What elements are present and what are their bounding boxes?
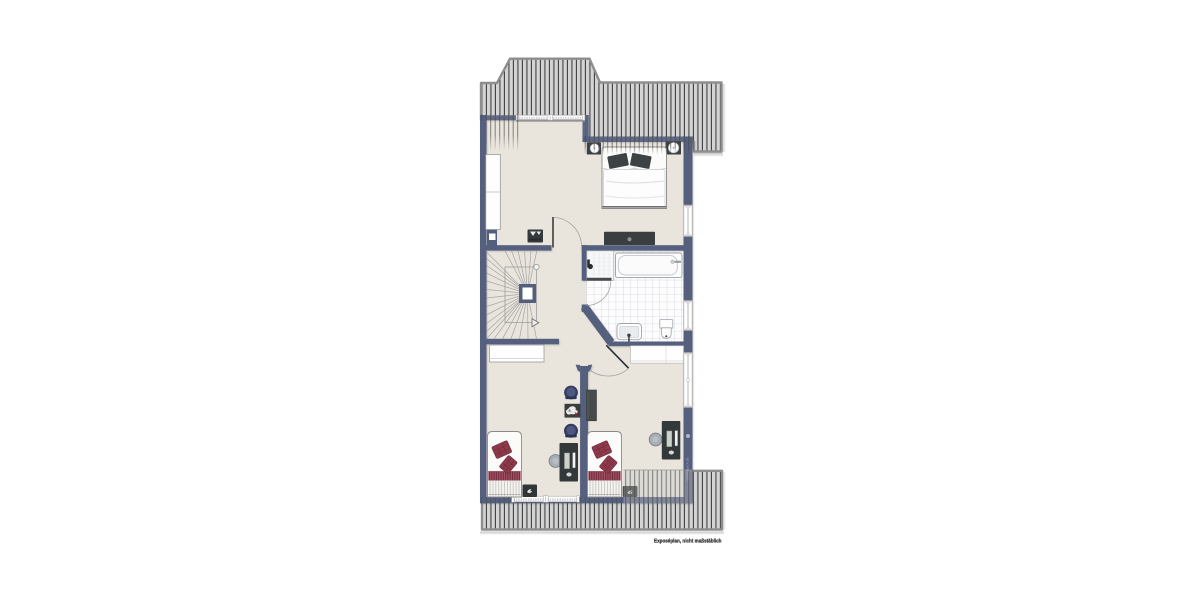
svg-text:wohnglueck.de: wohnglueck.de (686, 457, 690, 480)
svg-text:Exposéplan, nicht maßstäblich: Exposéplan, nicht maßstäblich (654, 537, 722, 544)
